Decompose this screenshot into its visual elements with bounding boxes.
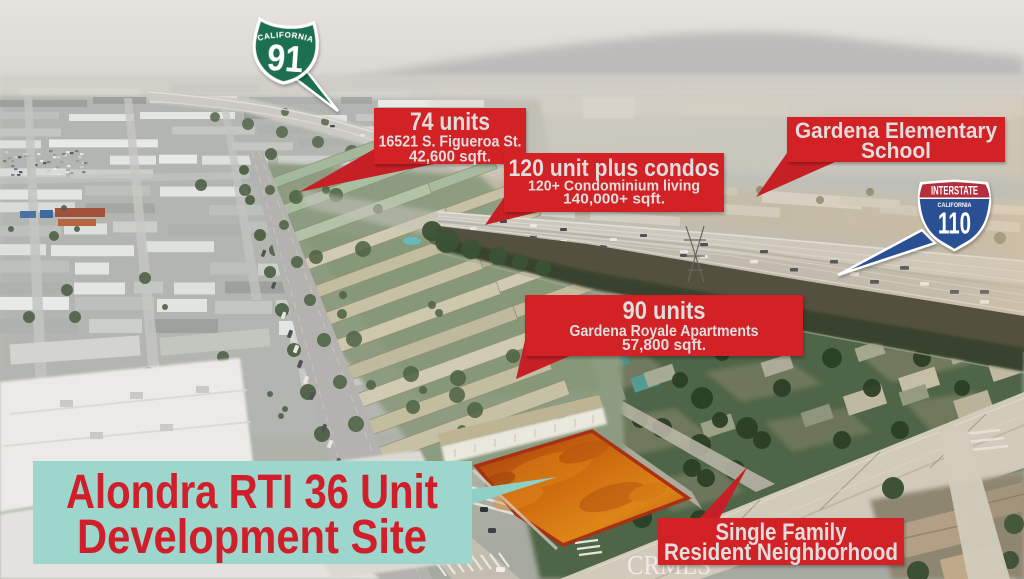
svg-text:INTERSTATE: INTERSTATE bbox=[931, 184, 978, 198]
svg-text:School: School bbox=[861, 138, 931, 163]
svg-text:90 units: 90 units bbox=[623, 297, 706, 325]
svg-text:42,600 sqft.: 42,600 sqft. bbox=[409, 149, 491, 166]
svg-text:91: 91 bbox=[266, 37, 305, 80]
svg-text:Resident Neighborhood: Resident Neighborhood bbox=[664, 539, 898, 566]
svg-text:140,000+ sqft.: 140,000+ sqft. bbox=[563, 191, 665, 208]
svg-text:57,800 sqft.: 57,800 sqft. bbox=[622, 337, 706, 354]
svg-text:110: 110 bbox=[938, 206, 971, 241]
svg-text:74 units: 74 units bbox=[410, 108, 490, 136]
svg-text:Development Site: Development Site bbox=[77, 511, 427, 564]
